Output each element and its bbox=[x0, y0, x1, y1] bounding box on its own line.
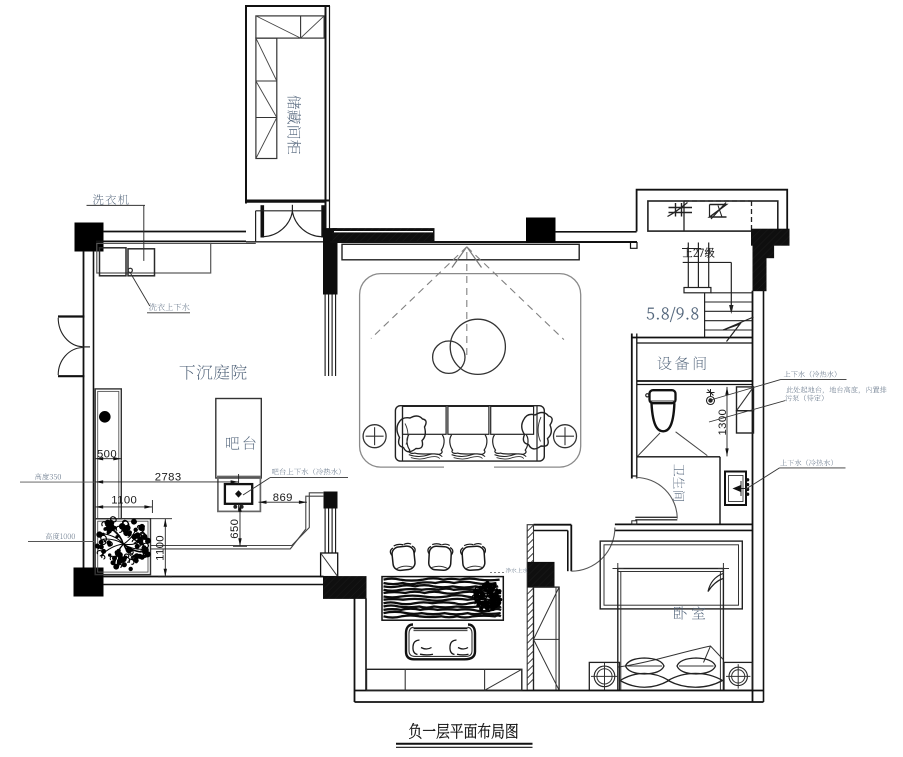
svg-text:1100: 1100 bbox=[154, 535, 166, 561]
svg-text:650: 650 bbox=[229, 519, 241, 539]
svg-text:1100: 1100 bbox=[111, 495, 137, 507]
svg-text:1300: 1300 bbox=[717, 409, 729, 436]
